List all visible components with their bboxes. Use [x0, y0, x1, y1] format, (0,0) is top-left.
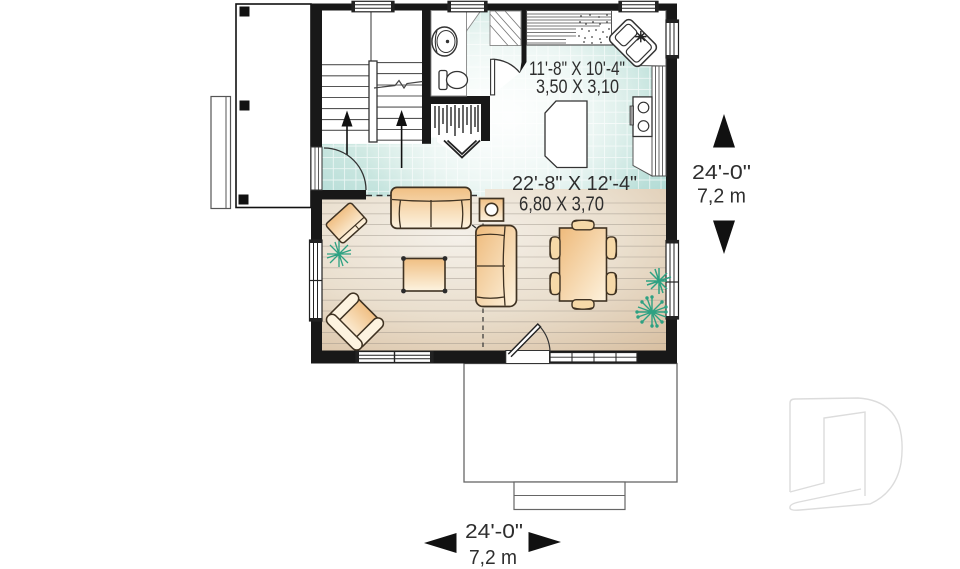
svg-text:24'-0": 24'-0" — [692, 162, 751, 184]
svg-text:22'-8" X 12'-4": 22'-8" X 12'-4" — [512, 173, 637, 195]
svg-text:7,2 m: 7,2 m — [697, 186, 746, 208]
svg-text:3,50 X 3,10: 3,50 X 3,10 — [536, 76, 619, 98]
svg-text:6,80 X 3,70: 6,80 X 3,70 — [519, 194, 604, 216]
svg-text:7,2 m: 7,2 m — [469, 547, 517, 569]
svg-text:24'-0": 24'-0" — [465, 521, 523, 543]
